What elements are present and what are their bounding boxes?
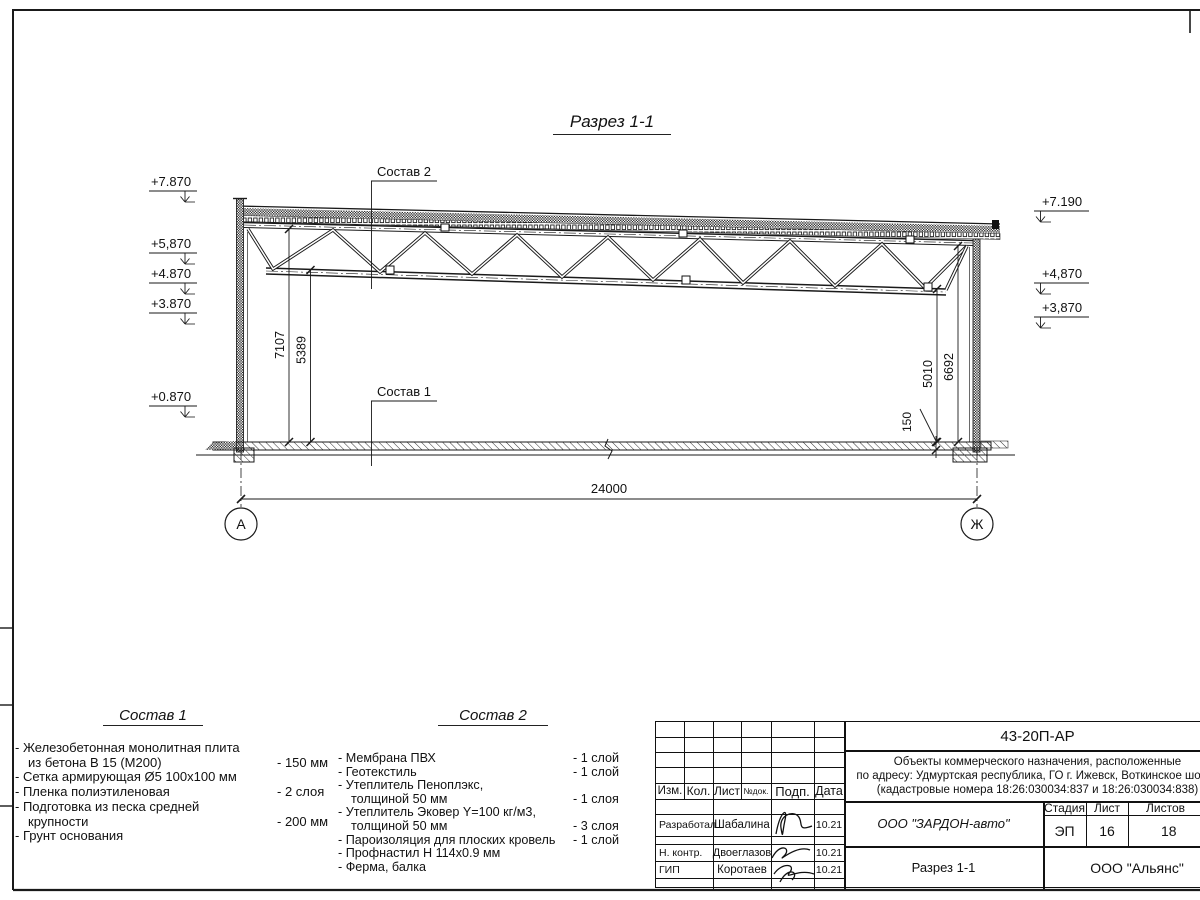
sheet-label: Лист: [1086, 801, 1128, 815]
list-item: - Утеплитель Пеноплэкс,: [338, 779, 638, 793]
sostav2-heading: Состав 2: [438, 707, 548, 726]
role-gip: ГИП: [656, 861, 716, 878]
elev-4870-right: +4,870: [1034, 266, 1089, 294]
list-item: крупности- 200 мм: [15, 815, 345, 830]
sheets-value: 18: [1128, 815, 1200, 846]
dim-5389-text: 5389: [295, 336, 309, 364]
section-title: Разрез 1-1: [553, 112, 671, 135]
sostav1-list: - Железобетонная монолитная плита из бет…: [15, 741, 345, 844]
stage-value: ЭП: [1043, 815, 1086, 846]
svg-text:+4.870: +4.870: [151, 266, 191, 281]
name-gip: Коротаев: [713, 861, 771, 878]
signature-ncontrol-gip: [766, 838, 822, 886]
elev-5870: +5,870: [149, 236, 197, 264]
list-item: - Железобетонная монолитная плита: [15, 741, 345, 756]
sheet-value: 16: [1086, 815, 1128, 846]
dim-150: 150: [900, 409, 940, 458]
list-item: толщиной 50 мм- 1 слоя: [338, 793, 638, 807]
right-blind-area: [981, 441, 1008, 448]
right-foundation: [953, 448, 987, 462]
left-foundation: [234, 448, 254, 462]
list-item: - Грунт основания: [15, 829, 345, 844]
list-item: - Утеплитель Эковер Y=100 кг/м3,: [338, 806, 638, 820]
list-item: - Сетка армирующая Ø5 100х100 мм: [15, 770, 345, 785]
svg-text:+3,870: +3,870: [1042, 300, 1082, 315]
design-company: ООО "ЗАРДОН-авто": [844, 801, 1043, 846]
floor: [196, 439, 1015, 462]
dim-7107-text: 7107: [273, 331, 287, 359]
role-ncontrol: Н. контр.: [656, 844, 716, 861]
svg-text:Состав 2: Состав 2: [377, 164, 431, 179]
frame-binding-ticks: [0, 628, 13, 806]
dim-span-text: 24000: [591, 481, 627, 496]
col-ndok: №док.: [741, 783, 771, 799]
list-item: - Пароизоляция для плоских кровель- 1 сл…: [338, 834, 638, 848]
elev-3870-right: +3,870: [1034, 300, 1089, 328]
dim-6692-text: 6692: [942, 353, 956, 381]
col-izm: Изм.: [656, 783, 684, 799]
contractor: ООО "Альянс": [1043, 846, 1200, 889]
doc-number: 43-20П-АР: [844, 723, 1200, 750]
dim-6692: 6692: [942, 242, 962, 446]
dim-span: 24000: [237, 481, 981, 503]
dim-5010-text: 5010: [921, 360, 935, 388]
left-blind-area: [205, 441, 236, 450]
dim-5010: 5010: [921, 285, 941, 446]
title-block: 43-20П-АР Объекты коммерческого назначен…: [655, 721, 1200, 888]
svg-text:+7.870: +7.870: [151, 174, 191, 189]
svg-text:+7.190: +7.190: [1042, 194, 1082, 209]
sostav2-list: - Мембрана ПВХ- 1 слой - Геотекстиль- 1 …: [338, 752, 638, 874]
roof-assembly: [237, 206, 1000, 240]
svg-text:+0.870: +0.870: [151, 389, 191, 404]
col-list: Лист: [713, 783, 741, 799]
svg-text:+5,870: +5,870: [151, 236, 191, 251]
list-item: - Геотекстиль- 1 слой: [338, 766, 638, 780]
truss-bottom-chord: [266, 268, 946, 295]
elev-7870: +7.870: [149, 174, 197, 202]
dim-150-text: 150: [900, 412, 914, 432]
roof-edge-plate: [992, 220, 999, 229]
name-developer: Шабалина: [713, 814, 771, 836]
sheets-label: Листов: [1128, 801, 1200, 815]
floor-slab: [213, 442, 991, 450]
list-item: толщиной 50 мм- 3 слоя: [338, 820, 638, 834]
svg-text:+4,870: +4,870: [1042, 266, 1082, 281]
col-podp: Подп.: [771, 783, 814, 799]
name-ncontrol: Двоеглазов: [713, 844, 771, 861]
list-item: из бетона В 15 (М200)- 150 мм: [15, 756, 345, 771]
elevation-markers-right: +7.190 +4,870 +3,870: [1034, 194, 1089, 328]
list-item: - Профнастил Н 114х0.9 мм: [338, 847, 638, 861]
elev-4870-left: +4.870: [149, 266, 197, 294]
svg-text:Состав 1: Состав 1: [377, 384, 431, 399]
axis-letter-right: Ж: [971, 516, 984, 532]
list-item: - Пленка полиэтиленовая- 2 слоя: [15, 785, 345, 800]
list-item: - Мембрана ПВХ- 1 слой: [338, 752, 638, 766]
dims-vertical: 7107 5389 5010 6692 150: [273, 225, 962, 458]
sheet-title: Разрез 1-1: [844, 846, 1043, 889]
sostav1-heading: Состав 1: [103, 707, 203, 726]
elev-3870-left: +3.870: [149, 296, 197, 324]
elevation-markers-left: +7.870 +5,870 +4.870 +3.870 +0.870: [149, 174, 197, 417]
axis-letter-left: А: [236, 516, 246, 532]
role-developer: Разработал: [656, 814, 716, 836]
leader-sostav1: Состав 1: [371, 384, 437, 466]
stage-label: Стадия: [1043, 801, 1086, 815]
col-kol: Кол.: [684, 783, 713, 799]
col-data: Дата: [814, 783, 844, 799]
svg-text:+3.870: +3.870: [151, 296, 191, 311]
list-item: - Подготовка из песка средней: [15, 800, 345, 815]
right-wall: [973, 239, 980, 452]
signature-developer: [768, 804, 820, 842]
elev-0870: +0.870: [149, 389, 197, 417]
dim-5389: 5389: [295, 266, 315, 446]
drawing-sheet: { "drawing": { "title": "Разрез 1-1", "l…: [0, 0, 1200, 900]
left-wall: [237, 199, 244, 452]
elev-7190: +7.190: [1034, 194, 1089, 222]
project-description: Объекты коммерческого назначения, распол…: [846, 752, 1200, 800]
list-item: - Ферма, балка: [338, 861, 638, 875]
